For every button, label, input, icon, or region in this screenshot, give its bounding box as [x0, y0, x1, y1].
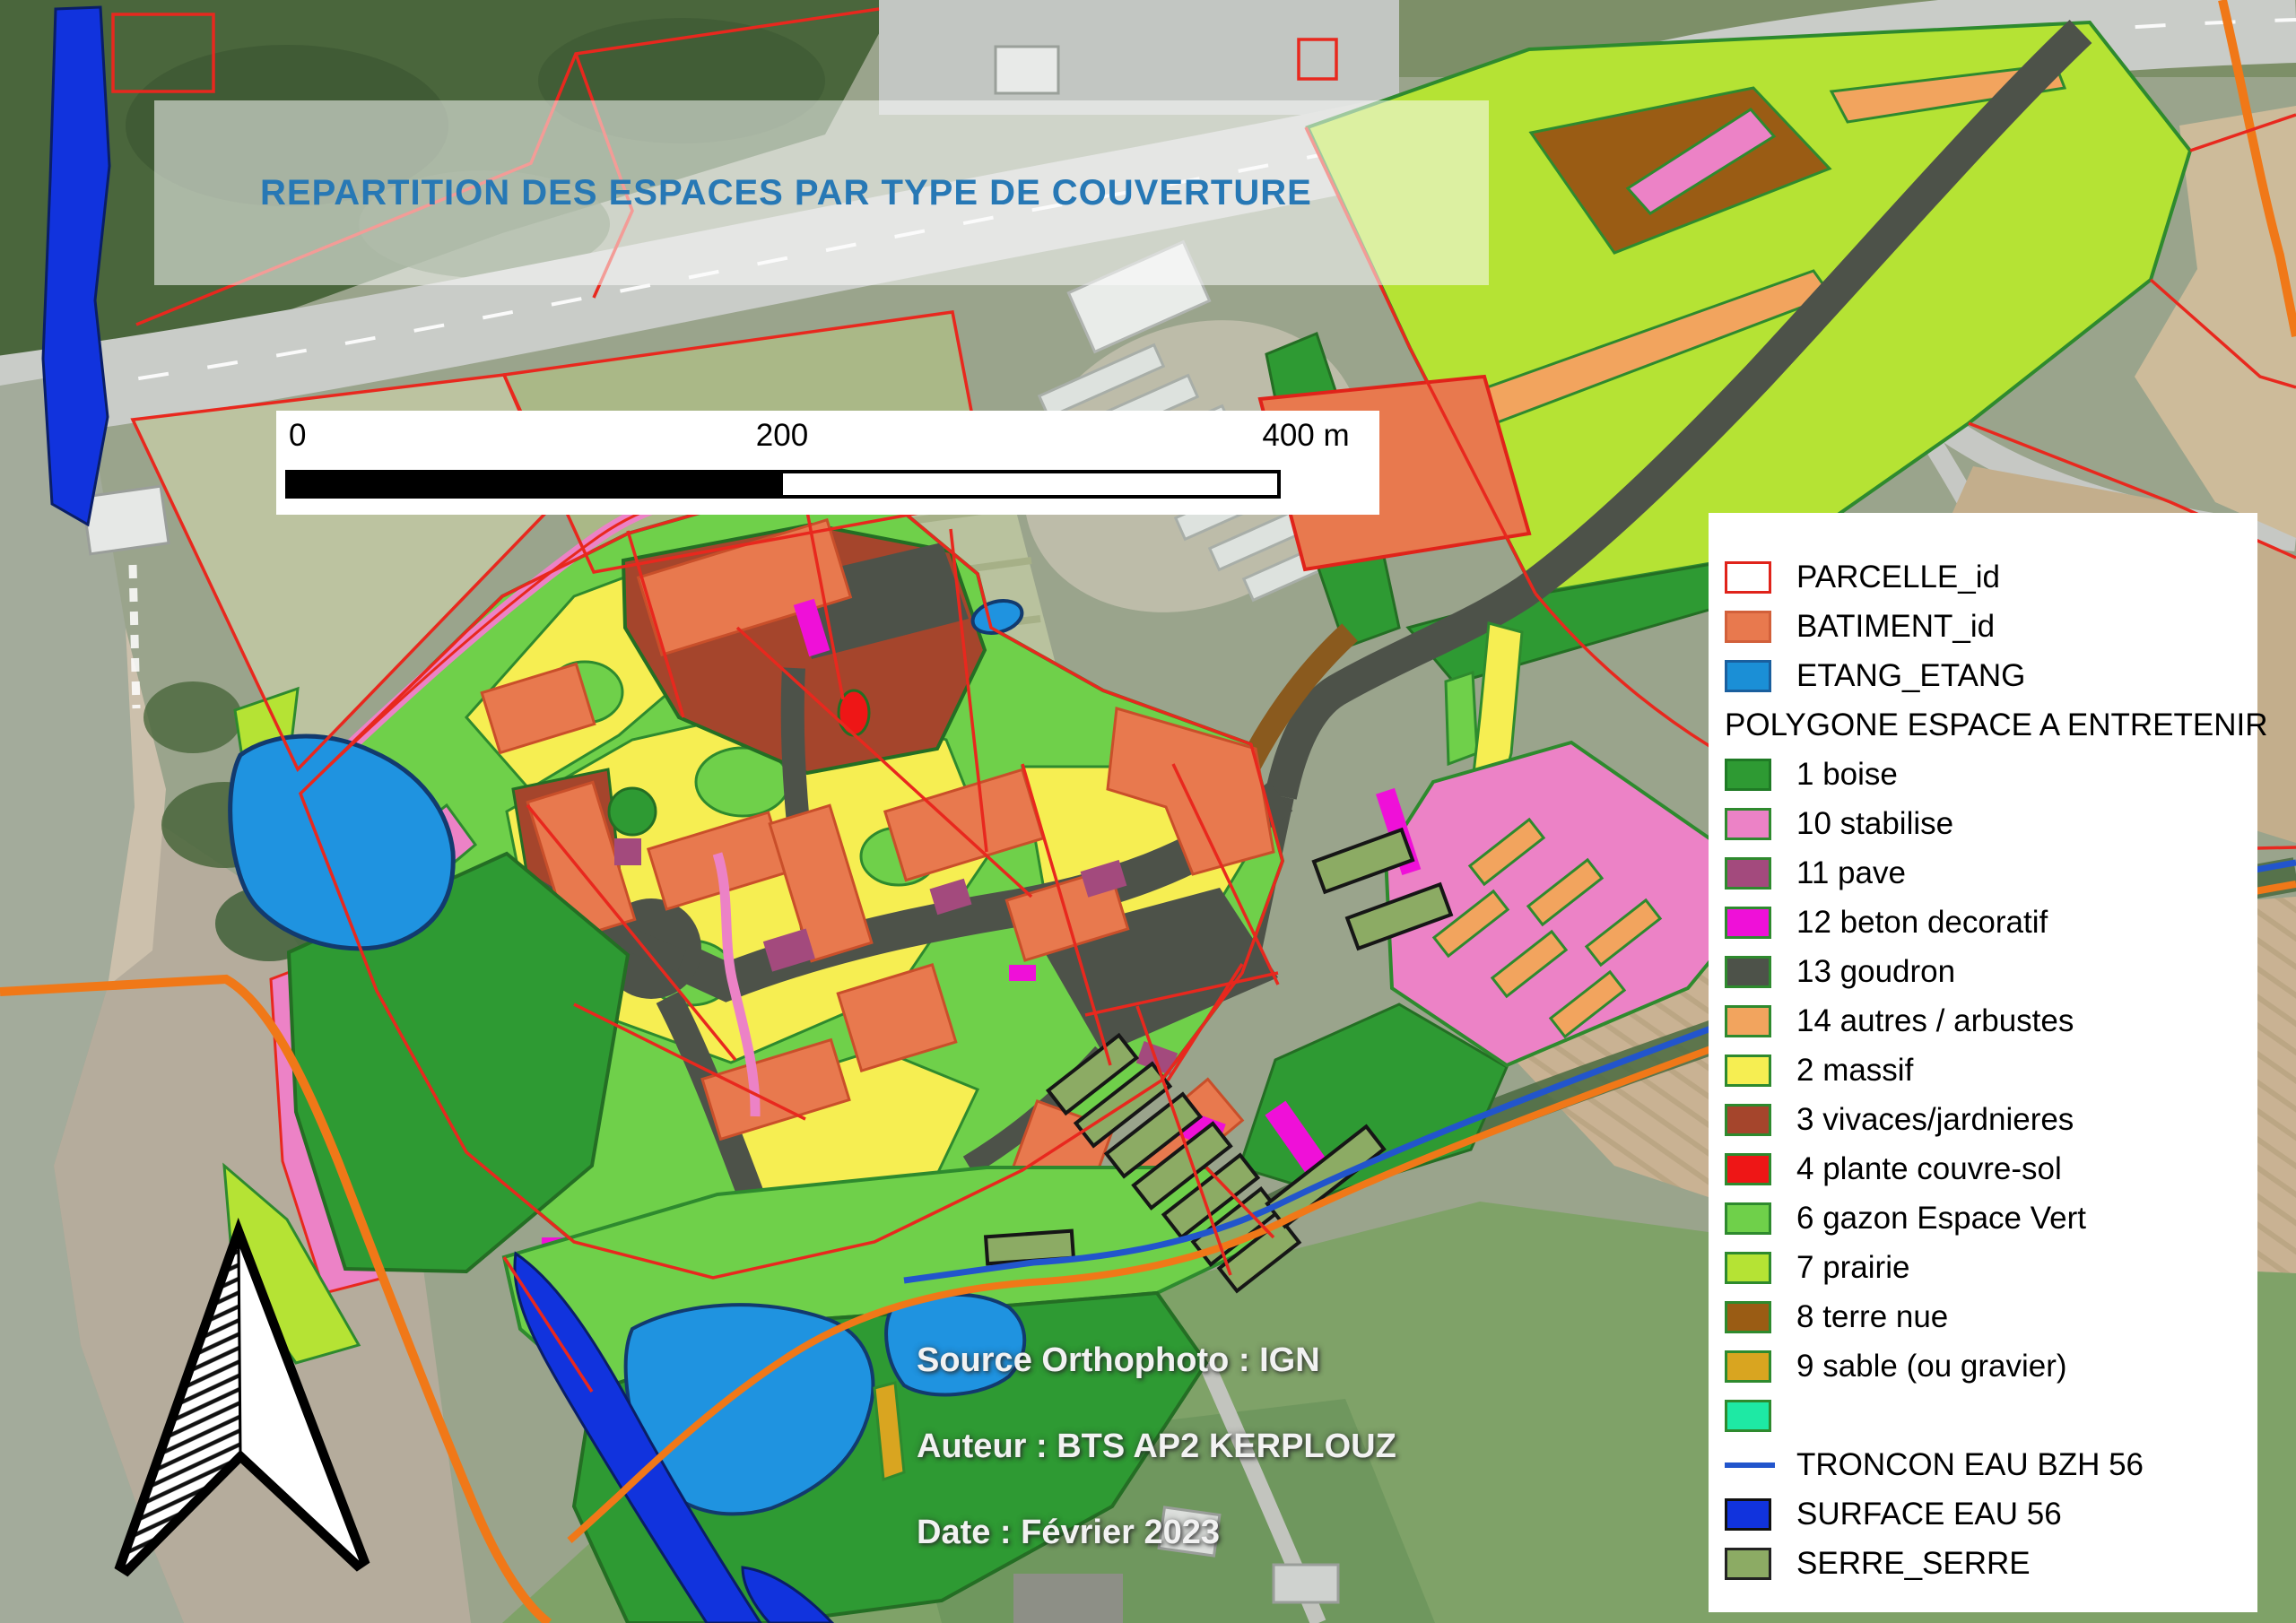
scalebar: 0 200 400 m	[276, 411, 1379, 515]
legend-item-label: 6 gazon Espace Vert	[1796, 1201, 2086, 1237]
legend-item: TRONCON EAU BZH 56	[1725, 1440, 2257, 1489]
legend: PARCELLE_idBATIMENT_idETANG_ETANGPOLYGON…	[1709, 513, 2257, 1612]
legend-color-swatch	[1725, 1252, 1771, 1284]
legend-color-swatch	[1725, 759, 1771, 791]
legend-item: 2 massif	[1725, 1046, 2257, 1095]
legend-item: 9 sable (ou gravier)	[1725, 1341, 2257, 1391]
legend-item-label: BATIMENT_id	[1796, 609, 1995, 645]
legend-color-swatch	[1725, 660, 1771, 692]
legend-item: BATIMENT_id	[1725, 602, 2257, 651]
legend-item-label: SURFACE EAU 56	[1796, 1497, 2062, 1532]
legend-item: 13 goudron	[1725, 947, 2257, 996]
legend-color-swatch	[1725, 1548, 1771, 1580]
scalebar-label-start: 0	[289, 418, 306, 454]
legend-item: 12 beton decoratif	[1725, 898, 2257, 947]
legend-item-label: 4 plante couvre-sol	[1796, 1151, 2062, 1187]
legend-item-label: 11 pave	[1796, 855, 1906, 891]
legend-item	[1725, 1391, 2257, 1440]
legend-item: 4 plante couvre-sol	[1725, 1144, 2257, 1193]
title-overlay: REPARTITION DES ESPACES PAR TYPE DE COUV…	[154, 100, 1489, 285]
legend-color-swatch	[1725, 1153, 1771, 1185]
legend-item-label: 8 terre nue	[1796, 1299, 1948, 1335]
legend-color-swatch	[1725, 1301, 1771, 1333]
legend-header-label: POLYGONE ESPACE A ENTRETENIR	[1725, 707, 2268, 743]
legend-item-label: 13 goudron	[1796, 954, 1955, 990]
legend-item-label: 3 vivaces/jardnieres	[1796, 1102, 2074, 1138]
author-text: Auteur : BTS AP2 KERPLOUZ	[917, 1428, 1396, 1466]
scalebar-label-middle: 200	[756, 418, 808, 454]
source-text: Source Orthophoto : IGN	[917, 1341, 1320, 1380]
north-arrow-icon	[95, 1214, 384, 1594]
legend-item: SURFACE EAU 56	[1725, 1489, 2257, 1539]
legend-item-label: 9 sable (ou gravier)	[1796, 1349, 2067, 1384]
legend-item: 11 pave	[1725, 848, 2257, 898]
legend-item: 6 gazon Espace Vert	[1725, 1193, 2257, 1243]
legend-color-swatch	[1725, 1400, 1771, 1432]
legend-item-label: PARCELLE_id	[1796, 560, 2000, 595]
legend-item: ETANG_ETANG	[1725, 651, 2257, 700]
legend-item-label: 14 autres / arbustes	[1796, 1003, 2074, 1039]
legend-color-swatch	[1725, 611, 1771, 643]
legend-color-swatch	[1725, 1350, 1771, 1383]
legend-item: SERRE_SERRE	[1725, 1539, 2257, 1588]
legend-item: 8 terre nue	[1725, 1292, 2257, 1341]
legend-item-label: ETANG_ETANG	[1796, 658, 2025, 694]
page-title: REPARTITION DES ESPACES PAR TYPE DE COUV…	[154, 173, 1312, 213]
legend-color-swatch	[1725, 907, 1771, 939]
legend-item: 3 vivaces/jardnieres	[1725, 1095, 2257, 1144]
legend-color-swatch	[1725, 1498, 1771, 1531]
date-text: Date : Février 2023	[917, 1514, 1220, 1552]
legend-color-swatch	[1725, 1005, 1771, 1037]
legend-item-label: SERRE_SERRE	[1796, 1546, 2031, 1582]
legend-item-label: 7 prairie	[1796, 1250, 1909, 1286]
legend-color-swatch	[1725, 1202, 1771, 1235]
scalebar-bar	[285, 470, 1281, 499]
legend-color-swatch	[1725, 956, 1771, 988]
map-layout-page: REPARTITION DES ESPACES PAR TYPE DE COUV…	[0, 0, 2296, 1623]
legend-item: 10 stabilise	[1725, 799, 2257, 848]
scalebar-label-end: 400 m	[1262, 418, 1349, 454]
legend-color-swatch	[1725, 1055, 1771, 1087]
scalebar-bar-fill	[289, 473, 783, 495]
legend-item-label: 2 massif	[1796, 1053, 1913, 1089]
legend-line-swatch	[1725, 1462, 1775, 1468]
legend-color-swatch	[1725, 1104, 1771, 1136]
legend-color-swatch	[1725, 561, 1771, 594]
legend-item: PARCELLE_id	[1725, 552, 2257, 602]
legend-item-label: 10 stabilise	[1796, 806, 1953, 842]
legend-item-label: 12 beton decoratif	[1796, 905, 2048, 941]
legend-item-label: 1 boise	[1796, 757, 1898, 793]
legend-item-label: TRONCON EAU BZH 56	[1796, 1447, 2144, 1483]
legend-section-header: POLYGONE ESPACE A ENTRETENIR	[1725, 700, 2257, 750]
legend-item: 7 prairie	[1725, 1243, 2257, 1292]
legend-color-swatch	[1725, 857, 1771, 890]
legend-item: 14 autres / arbustes	[1725, 996, 2257, 1046]
legend-color-swatch	[1725, 808, 1771, 840]
legend-item: 1 boise	[1725, 750, 2257, 799]
